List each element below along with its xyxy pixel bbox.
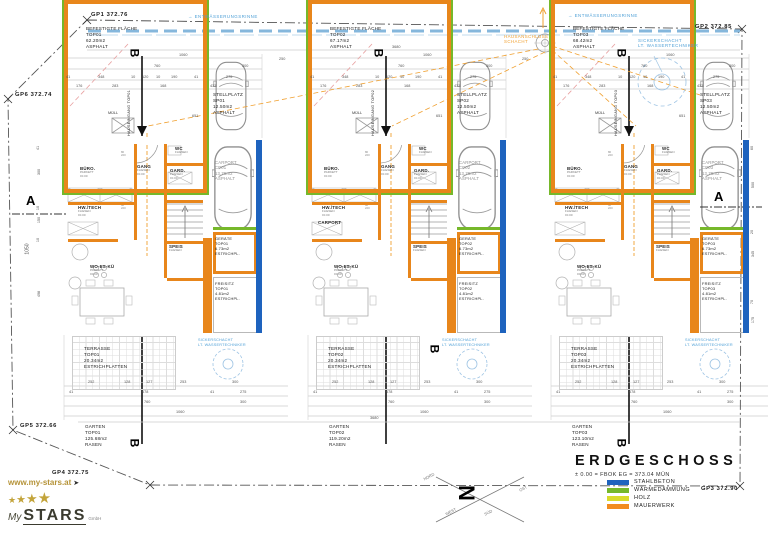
dim-label: 252 bbox=[88, 380, 94, 384]
dim-label: 760 bbox=[398, 64, 404, 68]
dim-label: 433 bbox=[697, 84, 703, 88]
dim-label: 10 bbox=[400, 75, 404, 79]
logo-my: My bbox=[8, 512, 21, 523]
dim-label: 300 bbox=[719, 380, 725, 384]
house-unit: BEFESTIGTE FLÄCHETOP01 62.20m2ASPHALT B … bbox=[64, 0, 294, 543]
dim-label: 250 bbox=[279, 57, 285, 61]
dim-label: 41 bbox=[438, 75, 442, 79]
entrance-opening bbox=[623, 137, 647, 145]
section-b-marker: B bbox=[127, 439, 141, 448]
dim-label: 433 bbox=[210, 84, 216, 88]
partition-wall bbox=[411, 163, 447, 166]
garten-label: GARTENTOP03 123.10m2RASEN bbox=[572, 424, 594, 448]
partition-wall bbox=[654, 200, 690, 203]
dim-label: 498 bbox=[37, 291, 41, 297]
plan-title: ERDGESCHOSS bbox=[575, 453, 737, 469]
dim-label: 1060 bbox=[176, 410, 184, 414]
dim-label: 168 bbox=[160, 84, 166, 88]
gp-point-label: GP6 372.74 bbox=[15, 92, 52, 98]
partition-wall bbox=[378, 144, 381, 240]
partition-wall bbox=[134, 144, 137, 240]
soak-pit-label: SICKERSCHACHT LT. WASSERTECHNIKER bbox=[638, 38, 698, 48]
room-label-wohnen: WO-ES-KÜ PARKETT±0.00 bbox=[577, 264, 601, 276]
dim-label: 127 bbox=[146, 380, 152, 384]
dim-label: 190 bbox=[658, 75, 664, 79]
dim-label: 275 bbox=[713, 75, 719, 79]
dim-label: 345 bbox=[751, 251, 755, 257]
dim-label: 190 bbox=[415, 75, 421, 79]
legend-swatch-holz bbox=[607, 496, 629, 501]
dim-label: 253 bbox=[667, 380, 673, 384]
dim-label: 41 bbox=[194, 75, 198, 79]
legend-item: STAHLBETON bbox=[607, 478, 737, 486]
dim-label: 127 bbox=[390, 380, 396, 384]
dim-label: 348 bbox=[98, 75, 104, 79]
sickerschacht-label: SICKERSCHACHTLT. WASSERTECHNIKER bbox=[685, 338, 733, 348]
room-label-hwtech: HW./TECH FLIESEN±0.00 bbox=[322, 205, 345, 217]
room-label-wc: WC FLIESEN bbox=[419, 146, 432, 155]
geraete-label: GERÄTETOP02 6.73m2ESTRICHPL. bbox=[459, 236, 484, 256]
dim-label: 41 bbox=[66, 75, 70, 79]
dim-label: 300 bbox=[476, 380, 482, 384]
dim-label: 651 bbox=[679, 114, 685, 118]
dim-label: 253 bbox=[424, 380, 430, 384]
section-a-marker: A bbox=[26, 193, 35, 208]
dim-label: 41 bbox=[310, 75, 314, 79]
room-label-hwtech: HW./TECH FLIESEN±0.00 bbox=[78, 205, 101, 217]
dim-label: 128 bbox=[611, 380, 617, 384]
drainage-channel-label: → ENTWÄSSERUNGSRINNE bbox=[188, 14, 258, 19]
dim-label: 275 bbox=[470, 75, 476, 79]
dim-label: 253 bbox=[180, 380, 186, 384]
dim-label: 433 bbox=[454, 84, 460, 88]
door-size-tag: 80220 bbox=[121, 151, 126, 157]
section-b-marker: B bbox=[427, 345, 441, 354]
dim-label: 3680 bbox=[392, 45, 400, 49]
hauseingang-label: HAUSEINGANG TOP02 bbox=[371, 76, 375, 136]
insulation-strip bbox=[457, 227, 501, 230]
partition-wall bbox=[411, 278, 447, 281]
freisitz-label: FREISITZTOP01 4.81m2ESTRICHPL. bbox=[215, 281, 240, 301]
dim-label: 128 bbox=[124, 380, 130, 384]
masonry-wall bbox=[447, 238, 456, 333]
logo-stars: ★★★★ bbox=[8, 491, 101, 507]
dim-label: 120 bbox=[629, 75, 635, 79]
star-icon: ★ bbox=[16, 494, 26, 506]
dim-label: 10 bbox=[618, 75, 622, 79]
dim-label: 150 bbox=[37, 217, 41, 223]
dim-label: 120 bbox=[386, 75, 392, 79]
dim-label: 252 bbox=[575, 380, 581, 384]
arrow-icon: ➤ bbox=[73, 480, 79, 487]
north-arrow: N bbox=[453, 485, 479, 501]
partition-wall bbox=[654, 278, 690, 281]
sickerschacht-label: SICKERSCHACHTLT. WASSERTECHNIKER bbox=[442, 338, 490, 348]
room-label-wohnen: WO-ES-KÜ PARKETT±0.00 bbox=[90, 264, 114, 276]
dim-label: 1050 bbox=[25, 243, 31, 254]
dim-label: 283 bbox=[356, 84, 362, 88]
dim-label: 41 bbox=[681, 75, 685, 79]
concrete-wall bbox=[256, 140, 262, 333]
dim-label: 760 bbox=[641, 64, 647, 68]
partition-wall bbox=[68, 239, 118, 242]
legend-swatch-mauerwerk bbox=[607, 504, 629, 509]
room-label-buero: BÜRO. PARKETT±0.00 bbox=[567, 166, 582, 178]
geraete-label: GERÄTETOP03 6.73m2ESTRICHPL. bbox=[702, 236, 727, 256]
dim-label: 41 bbox=[313, 390, 317, 394]
dim-label: 120 bbox=[142, 75, 148, 79]
room-label-gang: GANG FLIESEN±0.00 bbox=[381, 164, 395, 176]
insulation-strip bbox=[213, 227, 257, 230]
dim-label: 70 bbox=[750, 300, 754, 304]
terrasse-label: TERRASSETOP01 20.34m2ESTRICHPLATTEN bbox=[84, 346, 127, 370]
stellplatz-label: STELLPLATZSP01 12.50m2ASPHALT bbox=[213, 92, 243, 116]
room-label-speis: SPEIS FLIESEN bbox=[656, 244, 670, 253]
company-logo: www.my-stars.at➤ ★★★★ MySTARSGmbH bbox=[8, 472, 101, 525]
dim-label: 3680 bbox=[370, 416, 378, 420]
dim-label: 10 bbox=[36, 238, 40, 242]
dim-label: 20 bbox=[750, 230, 754, 234]
section-a-marker: A bbox=[714, 189, 723, 204]
dim-label: 275 bbox=[727, 390, 733, 394]
dim-label: 41 bbox=[69, 390, 73, 394]
room-label-speis: SPEIS FLIESEN bbox=[169, 244, 183, 253]
dim-label: 760 bbox=[388, 400, 394, 404]
stellplatz-label: STELLPLATZSP02 12.50m2ASPHALT bbox=[457, 92, 487, 116]
hauseingang-label: HAUSEINGANG TOP03 bbox=[614, 76, 618, 136]
hauseingang-label: HAUSEINGANG TOP01 bbox=[127, 76, 131, 136]
terrasse-label: TERRASSETOP02 20.34m2ESTRICHPLATTEN bbox=[328, 346, 371, 370]
door-size-tag: 80220 bbox=[365, 151, 370, 157]
room-label-gard: GARD. FLIESEN±0.00 bbox=[170, 168, 185, 180]
dim-label: 1060 bbox=[666, 53, 674, 57]
dim-label: 300 bbox=[486, 64, 492, 68]
dim-label: 41 bbox=[553, 75, 557, 79]
dim-label: 250 bbox=[522, 57, 528, 61]
muell-label: MÜLL bbox=[595, 111, 605, 115]
dim-label: 176 bbox=[320, 84, 326, 88]
service-shaft-label: HAUSANSCHLUSS SCHACHT bbox=[504, 34, 548, 44]
dim-label: 300 bbox=[729, 64, 735, 68]
legend-swatch-stahlbeton bbox=[607, 480, 629, 485]
legend-item: HOLZ bbox=[607, 494, 737, 502]
insulation-strip bbox=[700, 227, 744, 230]
dim-label: 283 bbox=[112, 84, 118, 88]
dim-label: 252 bbox=[332, 380, 338, 384]
dim-label: 10 bbox=[36, 206, 40, 210]
dim-label: 500 bbox=[751, 182, 755, 188]
sickerschacht-label: SICKERSCHACHTLT. WASSERTECHNIKER bbox=[198, 338, 246, 348]
room-label-gard: GARD. FLIESEN±0.00 bbox=[414, 168, 429, 180]
garten-label: GARTENTOP02 119.20m2RASEN bbox=[329, 424, 351, 448]
drainage-channel-label: → ENTWÄSSERUNGSRINNE bbox=[568, 13, 638, 18]
partition-wall bbox=[621, 144, 624, 240]
dim-label: 275 bbox=[226, 75, 232, 79]
garten-label: GARTENTOP01 125.68m2RASEN bbox=[85, 424, 107, 448]
partition-wall bbox=[312, 239, 362, 242]
dim-label: 41 bbox=[697, 390, 701, 394]
room-label-wohnen: WO-ES-KÜ PARKETT±0.00 bbox=[334, 264, 358, 276]
dim-label: 300 bbox=[232, 380, 238, 384]
legend-item: WÄRMEDÄMMUNG bbox=[607, 486, 737, 494]
gp-point-label: GP2 372.85 bbox=[695, 24, 732, 30]
star-icon: ★ bbox=[38, 490, 51, 507]
star-icon: ★ bbox=[8, 495, 16, 505]
section-b-marker: B bbox=[127, 49, 141, 58]
dim-label: 168 bbox=[404, 84, 410, 88]
room-label-gard: GARD. FLIESEN±0.00 bbox=[657, 168, 672, 180]
dim-label: 128 bbox=[368, 380, 374, 384]
legend: ERDGESCHOSS ± 0.00 = FBOK EG = 373.04 MÜ… bbox=[575, 452, 737, 510]
dim-label: 41 bbox=[36, 146, 40, 150]
carport-label: CARPORTCP02 13.75m2ASPHALT bbox=[459, 160, 481, 182]
terrasse-label: TERRASSETOP03 20.34m2ESTRICHPLATTEN bbox=[571, 346, 614, 370]
room-label-extra: CARPORT bbox=[318, 220, 341, 225]
floor-plan-canvas: GP1 372.76 GP2 372.85 GP3 372.90 GP4 372… bbox=[0, 0, 768, 543]
freisitz-label: FREISITZTOP02 4.81m2ESTRICHPL. bbox=[459, 281, 484, 301]
dim-label: 678 bbox=[629, 390, 635, 394]
dim-label: 300 bbox=[37, 169, 41, 175]
section-b-marker: B bbox=[371, 49, 385, 58]
logo-brand: STARS bbox=[23, 507, 86, 525]
dim-label: 651 bbox=[436, 114, 442, 118]
room-label-gang: GANG FLIESEN±0.00 bbox=[137, 164, 151, 176]
section-b-marker: B bbox=[614, 49, 628, 58]
concrete-wall bbox=[743, 140, 749, 333]
dim-label: 275 bbox=[240, 390, 246, 394]
concrete-wall bbox=[500, 140, 506, 333]
dim-label: 10 bbox=[375, 75, 379, 79]
dim-label: 348 bbox=[342, 75, 348, 79]
door-size-tag: 80220 bbox=[608, 151, 613, 157]
room-label-speis: SPEIS FLIESEN bbox=[413, 244, 427, 253]
dim-label: 41 bbox=[210, 390, 214, 394]
entrance-opening bbox=[136, 137, 160, 145]
house-unit: BEFESTIGTE FLÄCHETOP02 67.17m2ASPHALT B … bbox=[308, 0, 538, 543]
dim-label: 300 bbox=[484, 400, 490, 404]
paved-area-label: BEFESTIGTE FLÄCHETOP01 62.20m2ASPHALT bbox=[86, 26, 137, 50]
dim-label: 190 bbox=[171, 75, 177, 79]
dim-label: 60 bbox=[750, 146, 754, 150]
freisitz-label: FREISITZTOP03 4.81m2ESTRICHPL. bbox=[702, 281, 727, 301]
dim-label: 300 bbox=[242, 64, 248, 68]
muell-label: MÜLL bbox=[108, 111, 118, 115]
muell-label: MÜLL bbox=[352, 111, 362, 115]
dim-label: 1060 bbox=[420, 410, 428, 414]
masonry-wall bbox=[203, 238, 212, 333]
carport-label: CARPORTCP01 13.75m2ASPHALT bbox=[215, 160, 237, 182]
partition-wall bbox=[411, 200, 447, 203]
geraete-label: GERÄTETOP01 6.73m2ESTRICHPL. bbox=[215, 236, 240, 256]
section-b-marker: B bbox=[614, 439, 628, 448]
partition-wall bbox=[167, 200, 203, 203]
dim-label: 348 bbox=[585, 75, 591, 79]
dim-label: 41 bbox=[556, 390, 560, 394]
gp-point-label: GP5 372.66 bbox=[20, 423, 57, 429]
dim-label: 176 bbox=[563, 84, 569, 88]
dim-label: 760 bbox=[154, 64, 160, 68]
dim-label: 10 bbox=[156, 75, 160, 79]
dim-label: 1060 bbox=[663, 410, 671, 414]
partition-wall bbox=[167, 278, 203, 281]
dim-label: 760 bbox=[144, 400, 150, 404]
dim-label: 275 bbox=[484, 390, 490, 394]
dim-label: 175 bbox=[751, 317, 755, 323]
dim-label: 300 bbox=[240, 400, 246, 404]
dim-label: 651 bbox=[192, 114, 198, 118]
room-label-buero: BÜRO. PARKETT±0.00 bbox=[324, 166, 339, 178]
dim-label: 10 bbox=[643, 75, 647, 79]
masonry-wall bbox=[690, 238, 699, 333]
dim-label: 10 bbox=[131, 75, 135, 79]
dim-label: 1060 bbox=[423, 53, 431, 57]
room-label-gang: GANG FLIESEN±0.00 bbox=[624, 164, 638, 176]
logo-url: www.my-stars.at bbox=[8, 478, 71, 487]
dim-label: 300 bbox=[727, 400, 733, 404]
paved-area-label: BEFESTIGTE FLÄCHETOP03 68.42m2ASPHALT bbox=[573, 26, 624, 50]
star-icon: ★ bbox=[26, 491, 38, 506]
partition-wall bbox=[167, 163, 203, 166]
dim-label: 127 bbox=[633, 380, 639, 384]
dim-label: 678 bbox=[386, 390, 392, 394]
paved-area-label: BEFESTIGTE FLÄCHETOP02 67.17m2ASPHALT bbox=[330, 26, 381, 50]
entrance-opening bbox=[380, 137, 404, 145]
dim-label: 176 bbox=[76, 84, 82, 88]
dim-label: 283 bbox=[599, 84, 605, 88]
gp-point-label: GP1 372.76 bbox=[91, 12, 128, 18]
partition-wall bbox=[555, 239, 605, 242]
room-label-buero: BÜRO. PARKETT±0.00 bbox=[80, 166, 95, 178]
dim-label: 41 bbox=[454, 390, 458, 394]
dim-label: 168 bbox=[647, 84, 653, 88]
stellplatz-label: STELLPLATZSP03 12.50m2ASPHALT bbox=[700, 92, 730, 116]
legend-item: MAUERWERK bbox=[607, 502, 737, 510]
partition-wall bbox=[654, 163, 690, 166]
room-label-wc: WC FLIESEN bbox=[662, 146, 675, 155]
room-label-wc: WC FLIESEN bbox=[175, 146, 188, 155]
legend-swatch-waermedaemmung bbox=[607, 488, 629, 493]
dim-label: 1060 bbox=[179, 53, 187, 57]
dim-label: 678 bbox=[142, 390, 148, 394]
room-label-hwtech: HW./TECH FLIESEN±0.00 bbox=[565, 205, 588, 217]
logo-gmbh: GmbH bbox=[88, 516, 101, 521]
dim-label: 760 bbox=[631, 400, 637, 404]
carport-label: CARPORTCP03 13.75m2ASPHALT bbox=[702, 160, 724, 182]
